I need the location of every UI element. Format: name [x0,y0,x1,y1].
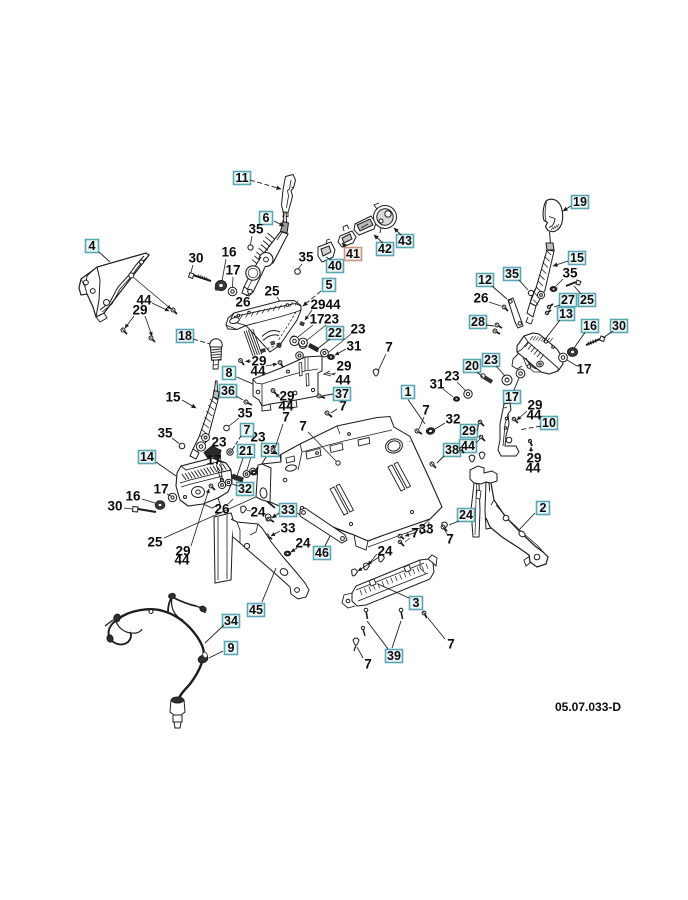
svg-text:23: 23 [350,322,366,337]
svg-text:17: 17 [505,390,519,404]
svg-text:35: 35 [157,426,173,441]
svg-text:35: 35 [237,406,253,421]
svg-text:15: 15 [165,390,181,405]
svg-text:11: 11 [235,171,248,185]
svg-text:33: 33 [418,522,434,537]
svg-text:3: 3 [413,596,420,610]
svg-text:10: 10 [542,416,556,430]
svg-text:7: 7 [244,423,251,437]
svg-text:22: 22 [328,326,342,340]
svg-text:40: 40 [328,259,342,273]
svg-text:29: 29 [310,297,325,312]
svg-text:46: 46 [315,546,329,560]
svg-text:43: 43 [398,234,412,248]
svg-text:17: 17 [309,312,324,327]
svg-text:44: 44 [335,373,351,388]
svg-text:26: 26 [235,295,251,310]
svg-text:9: 9 [228,641,235,655]
svg-text:6: 6 [263,211,270,225]
svg-text:30: 30 [107,499,122,514]
svg-text:32: 32 [445,412,460,427]
svg-text:31: 31 [346,339,362,354]
svg-text:5: 5 [326,278,333,292]
svg-text:7: 7 [411,526,419,541]
svg-text:32: 32 [238,482,252,496]
svg-text:42: 42 [378,242,392,256]
svg-text:19: 19 [573,195,587,209]
svg-text:7: 7 [282,410,290,425]
svg-text:34: 34 [224,614,238,628]
svg-text:13: 13 [559,307,573,321]
svg-text:24: 24 [377,544,393,559]
svg-text:44: 44 [526,408,542,423]
svg-text:25: 25 [580,293,594,307]
svg-text:4: 4 [89,239,96,253]
svg-text:44: 44 [174,553,190,568]
svg-text:12: 12 [478,273,492,287]
svg-text:41: 41 [346,247,360,261]
svg-text:7: 7 [299,419,307,434]
svg-text:39: 39 [387,649,401,663]
svg-text:7: 7 [364,657,372,672]
svg-text:8: 8 [226,366,233,380]
svg-text:7: 7 [385,340,393,355]
svg-text:29: 29 [462,424,476,438]
svg-text:25: 25 [147,535,163,550]
svg-text:21: 21 [239,444,253,458]
svg-text:24: 24 [295,536,311,551]
svg-text:44: 44 [325,297,341,312]
svg-text:18: 18 [178,329,192,343]
svg-text:24: 24 [459,508,473,522]
svg-text:33: 33 [280,521,296,536]
svg-text:24: 24 [250,505,266,520]
svg-text:15: 15 [570,251,584,265]
svg-text:20: 20 [465,359,479,373]
svg-text:36: 36 [221,384,235,398]
svg-text:38: 38 [445,443,459,457]
svg-text:7: 7 [447,637,455,652]
svg-text:27: 27 [561,293,575,307]
svg-text:16: 16 [125,489,141,504]
svg-text:17: 17 [576,362,591,377]
svg-text:30: 30 [188,251,203,266]
svg-text:28: 28 [471,315,485,329]
svg-text:16: 16 [221,245,237,260]
svg-text:35: 35 [562,266,578,281]
svg-text:1: 1 [405,385,412,399]
svg-text:35: 35 [298,250,314,265]
svg-text:05.07.033-D: 05.07.033-D [555,700,621,714]
svg-text:23: 23 [211,435,227,450]
svg-text:17: 17 [206,453,221,468]
svg-text:23: 23 [444,369,460,384]
svg-text:23: 23 [484,353,498,367]
svg-text:2: 2 [540,501,547,515]
svg-text:29: 29 [132,303,147,318]
svg-text:44: 44 [250,364,266,379]
svg-text:35: 35 [505,267,519,281]
svg-text:16: 16 [583,319,597,333]
svg-text:35: 35 [248,222,264,237]
svg-text:7: 7 [422,403,430,418]
svg-text:7: 7 [446,532,454,547]
svg-text:44: 44 [525,461,541,476]
svg-text:33: 33 [281,503,295,517]
svg-text:14: 14 [140,450,154,464]
svg-text:30: 30 [612,319,626,333]
svg-text:17: 17 [153,482,168,497]
svg-text:25: 25 [264,284,280,299]
svg-text:37: 37 [335,387,349,401]
svg-text:45: 45 [249,603,263,617]
svg-text:26: 26 [473,291,489,306]
svg-text:23: 23 [324,312,340,327]
svg-text:17: 17 [225,263,240,278]
svg-text:31: 31 [429,377,445,392]
svg-text:29: 29 [336,359,351,374]
